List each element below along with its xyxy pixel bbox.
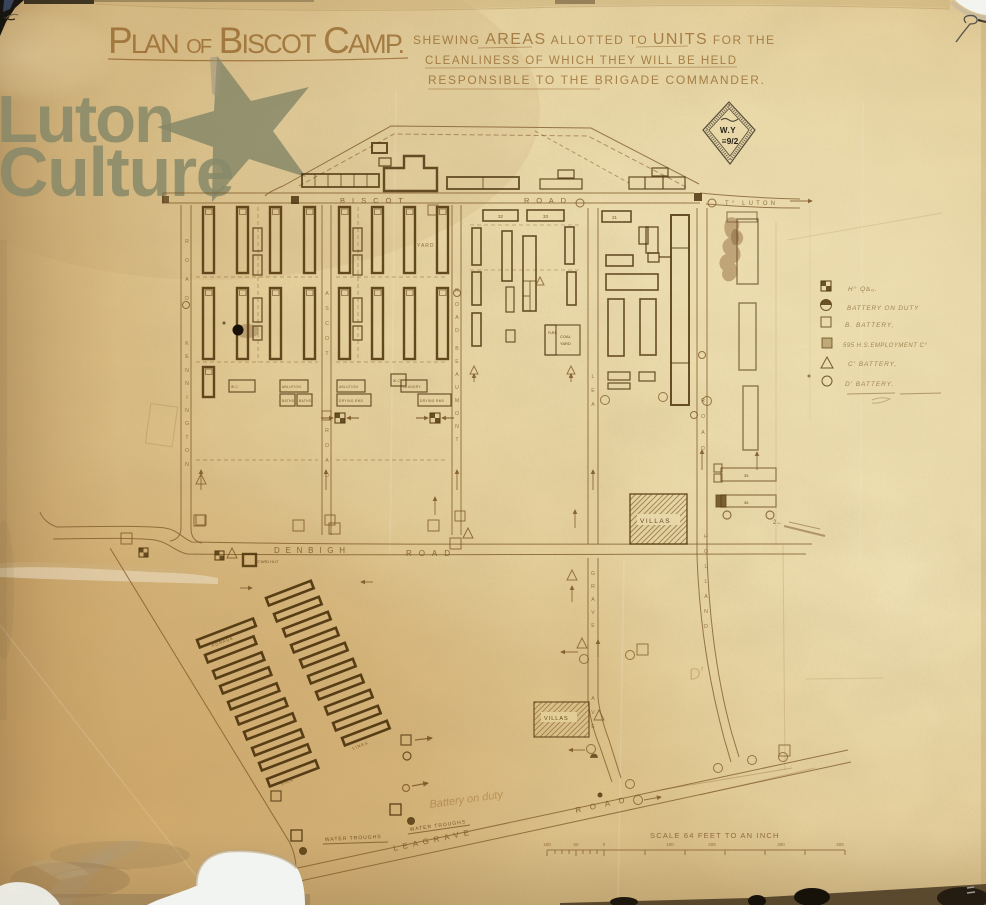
svg-text:S: S bbox=[325, 306, 329, 312]
svg-text:A: A bbox=[591, 696, 595, 702]
svg-text:ABLUTION: ABLUTION bbox=[339, 385, 358, 389]
svg-text:V: V bbox=[591, 610, 595, 616]
svg-text:400: 400 bbox=[836, 842, 844, 847]
svg-text:CLEANLINESS OF WHICH THEY WILL: CLEANLINESS OF WHICH THEY WILL BE HELD bbox=[425, 55, 737, 67]
svg-text:DENBIGH: DENBIGH bbox=[274, 546, 350, 555]
svg-text:K: K bbox=[185, 341, 189, 347]
svg-text:LAUNDRY: LAUNDRY bbox=[403, 385, 421, 389]
svg-text:36: 36 bbox=[744, 500, 749, 505]
svg-text:W.Y: W.Y bbox=[720, 126, 736, 135]
svg-text:≡9/2: ≡9/2 bbox=[722, 136, 739, 146]
svg-text:T° LUTON: T° LUTON bbox=[725, 201, 777, 207]
svg-text:A: A bbox=[185, 277, 189, 283]
svg-text:50: 50 bbox=[573, 842, 579, 847]
svg-text:M: M bbox=[455, 398, 459, 404]
svg-text:G: G bbox=[185, 421, 189, 427]
svg-text:C′ BATTERY,: C′ BATTERY, bbox=[848, 361, 897, 368]
svg-text:33: 33 bbox=[543, 214, 549, 219]
svg-text:A: A bbox=[325, 458, 329, 464]
svg-text:E: E bbox=[591, 724, 595, 730]
svg-text:31: 31 bbox=[612, 215, 618, 220]
svg-text:R: R bbox=[455, 288, 459, 294]
svg-text:L: L bbox=[592, 374, 595, 380]
svg-text:100: 100 bbox=[666, 842, 674, 847]
svg-text:E: E bbox=[185, 354, 189, 360]
svg-text:FUEL: FUEL bbox=[548, 331, 557, 335]
svg-text:G°ARD HUT: G°ARD HUT bbox=[256, 559, 279, 564]
svg-text:A: A bbox=[591, 402, 595, 408]
svg-text:N: N bbox=[185, 408, 189, 414]
svg-text:E: E bbox=[591, 388, 595, 394]
svg-text:A: A bbox=[701, 430, 705, 436]
svg-text:E: E bbox=[591, 623, 595, 629]
svg-text:VILLAS: VILLAS bbox=[544, 716, 569, 722]
svg-text:D: D bbox=[704, 624, 708, 630]
svg-text:O: O bbox=[701, 414, 705, 420]
svg-text:R: R bbox=[591, 584, 595, 590]
svg-text:2←: 2← bbox=[773, 520, 782, 526]
svg-text:A: A bbox=[325, 291, 329, 297]
svg-text:ROAD: ROAD bbox=[524, 196, 572, 205]
svg-text:D: D bbox=[455, 328, 459, 334]
svg-text:N: N bbox=[185, 462, 189, 468]
svg-text:RESPONSIBLE TO THE BRIGADE COM: RESPONSIBLE TO THE BRIGADE COMMANDER. bbox=[428, 73, 765, 87]
svg-text:YARD: YARD bbox=[417, 243, 435, 249]
svg-text:Culture: Culture bbox=[0, 133, 233, 211]
svg-text:BISCOT: BISCOT bbox=[340, 196, 409, 205]
svg-text:BATHS: BATHS bbox=[282, 399, 294, 403]
svg-text:W.C.: W.C. bbox=[393, 379, 402, 383]
svg-text:B. BATTERY,: B. BATTERY, bbox=[845, 322, 894, 329]
svg-text:O: O bbox=[704, 549, 708, 555]
svg-text:A: A bbox=[455, 372, 459, 378]
svg-text:A: A bbox=[455, 315, 459, 321]
svg-text:L: L bbox=[705, 564, 708, 570]
svg-text:C: C bbox=[325, 321, 329, 327]
svg-text:D′ BATTERY.: D′ BATTERY. bbox=[845, 381, 894, 388]
svg-text:I: I bbox=[186, 395, 187, 401]
svg-text:SHEWING AREAS ALLOTTED TO UNIT: SHEWING AREAS ALLOTTED TO UNITS FOR THE bbox=[413, 31, 775, 48]
svg-text:100: 100 bbox=[543, 842, 551, 847]
svg-text:BATTERY ON DUTY: BATTERY ON DUTY bbox=[847, 305, 919, 312]
svg-text:ROAD: ROAD bbox=[406, 549, 456, 558]
svg-text:O: O bbox=[185, 258, 189, 264]
svg-text:A: A bbox=[704, 594, 708, 600]
svg-text:U: U bbox=[455, 385, 459, 391]
svg-text:R: R bbox=[325, 428, 329, 434]
svg-text:DRYING RMS: DRYING RMS bbox=[339, 399, 363, 403]
svg-text:O: O bbox=[325, 443, 329, 449]
svg-text:S⁢CALE 64 F⁢EET T⁢O A⁢N I⁢: S⁢CALE 64 F⁢EET T⁢O A⁢N I⁢NCH bbox=[650, 831, 780, 840]
svg-text:H° Qʪₒ.: H° Qʪₒ. bbox=[848, 285, 878, 293]
svg-text:N: N bbox=[185, 368, 189, 374]
svg-text:300: 300 bbox=[777, 842, 785, 847]
svg-text:L: L bbox=[705, 579, 708, 585]
svg-text:O: O bbox=[455, 302, 459, 308]
svg-text:VILLAS: VILLAS bbox=[640, 518, 671, 525]
svg-text:N: N bbox=[185, 381, 189, 387]
svg-text:H: H bbox=[704, 534, 708, 540]
svg-text:DRYING RMS: DRYING RMS bbox=[420, 399, 444, 403]
svg-text:O: O bbox=[185, 448, 189, 454]
svg-text:200: 200 bbox=[708, 842, 716, 847]
svg-text:N: N bbox=[704, 609, 708, 615]
svg-text:O: O bbox=[455, 411, 459, 417]
svg-text:B: B bbox=[455, 346, 459, 352]
svg-text:35: 35 bbox=[744, 473, 749, 478]
svg-text:YARD: YARD bbox=[560, 341, 571, 346]
svg-text:N: N bbox=[455, 424, 459, 430]
svg-text:O: O bbox=[325, 336, 329, 342]
svg-text:32: 32 bbox=[498, 214, 504, 219]
svg-text:ABLUTION: ABLUTION bbox=[282, 385, 301, 389]
svg-text:G: G bbox=[591, 571, 595, 577]
svg-text:W.C.: W.C. bbox=[231, 385, 240, 389]
svg-text:E: E bbox=[455, 359, 459, 365]
svg-text:R: R bbox=[185, 239, 189, 245]
svg-text:595 H.S.EMPLOYMENT C°: 595 H.S.EMPLOYMENT C° bbox=[843, 343, 927, 349]
svg-text:V: V bbox=[591, 710, 595, 716]
svg-text:A: A bbox=[591, 597, 595, 603]
svg-text:BATHS: BATHS bbox=[299, 399, 311, 403]
svg-text:COAL: COAL bbox=[560, 334, 572, 339]
